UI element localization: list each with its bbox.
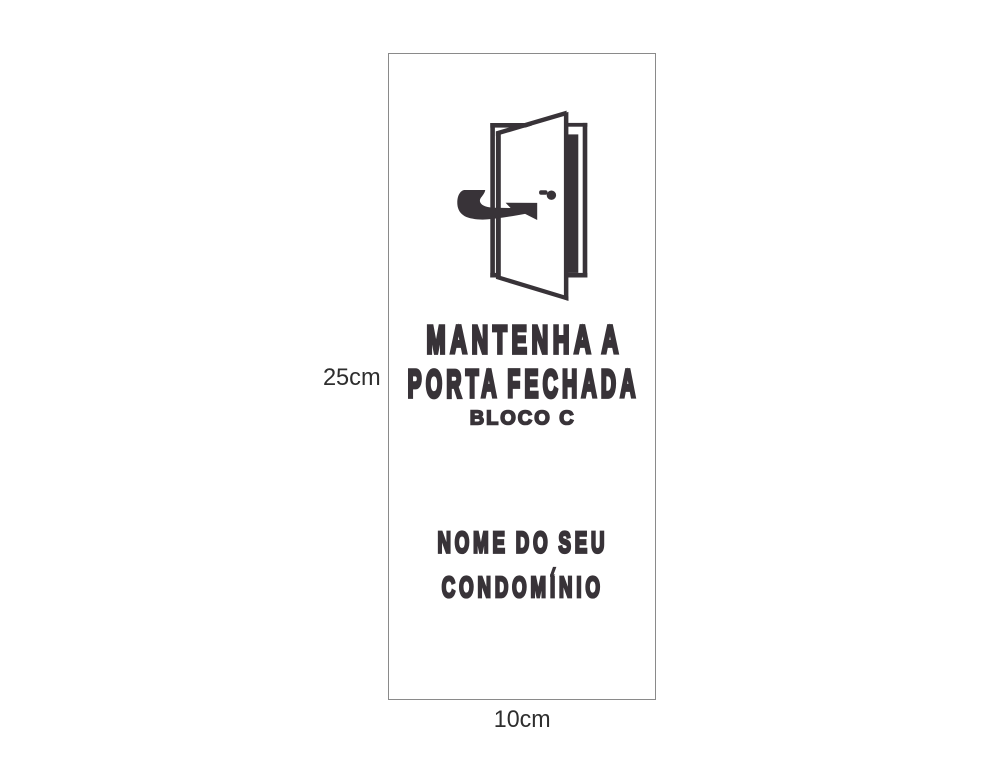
svg-text:NOME DO SEU: NOME DO SEU <box>438 528 609 560</box>
svg-text:MANTENHA A: MANTENHA A <box>427 319 624 362</box>
svg-text:PORTA FECHADA: PORTA FECHADA <box>408 363 640 406</box>
svg-text:CONDOMÍNIO: CONDOMÍNIO <box>442 572 604 604</box>
svg-text:10cm: 10cm <box>494 706 551 733</box>
svg-text:25cm: 25cm <box>323 364 381 391</box>
